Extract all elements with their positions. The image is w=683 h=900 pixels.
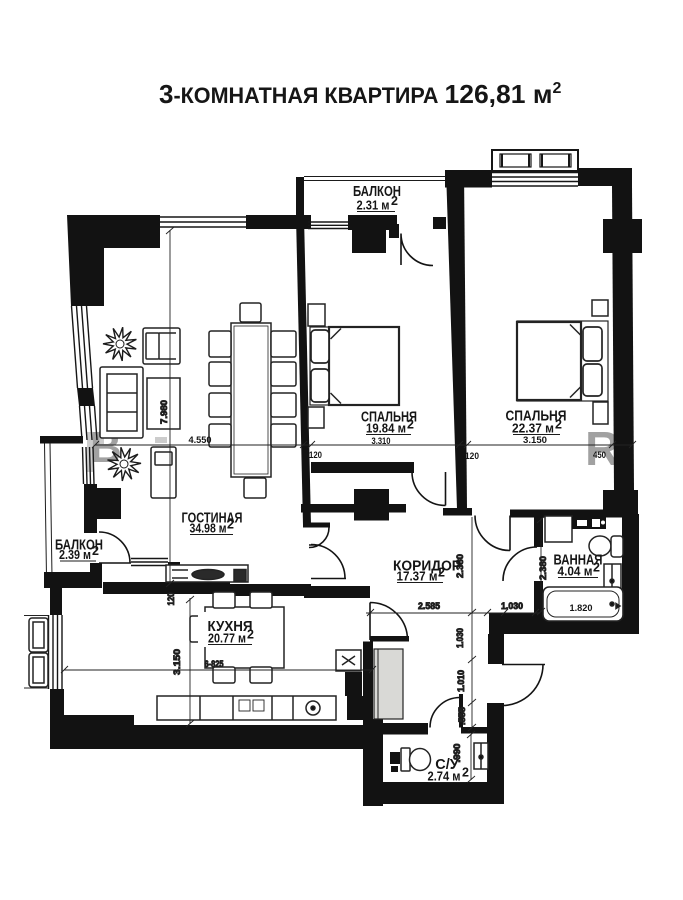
svg-text:2: 2	[391, 194, 398, 208]
svg-text:1.010: 1.010	[456, 670, 466, 692]
svg-text:2.74 м: 2.74 м	[428, 770, 461, 784]
svg-text:120: 120	[465, 451, 479, 461]
svg-text:120: 120	[309, 450, 322, 460]
svg-text:4.04 м: 4.04 м	[558, 565, 593, 579]
svg-text:34.98 м: 34.98 м	[190, 522, 227, 536]
svg-text:2.585: 2.585	[418, 601, 440, 611]
svg-text:17.37 м: 17.37 м	[397, 570, 438, 584]
svg-text:1.820: 1.820	[570, 603, 593, 613]
svg-text:4.550: 4.550	[189, 435, 212, 445]
svg-text:2: 2	[407, 418, 414, 432]
svg-text:2: 2	[438, 566, 445, 580]
svg-text:19.84 м: 19.84 м	[366, 422, 406, 436]
svg-text:3.150: 3.150	[523, 435, 547, 445]
svg-text:2: 2	[555, 418, 562, 432]
svg-text:450: 450	[593, 450, 606, 460]
svg-text:2.380: 2.380	[538, 556, 548, 580]
svg-text:7.980: 7.980	[159, 400, 169, 424]
svg-text:2: 2	[247, 628, 254, 642]
svg-text:20.77 м: 20.77 м	[208, 632, 246, 646]
svg-text:2: 2	[462, 766, 469, 780]
svg-text:2.39 м: 2.39 м	[59, 548, 91, 562]
svg-text:.555: .555	[457, 707, 467, 725]
svg-text:1.030: 1.030	[501, 601, 523, 611]
svg-text:1.030: 1.030	[455, 628, 465, 648]
svg-text:3.310: 3.310	[372, 436, 391, 446]
svg-text:2: 2	[227, 518, 234, 532]
svg-text:2: 2	[92, 544, 99, 558]
svg-text:3-КОМНАТНАЯ КВАРТИРА126,81 м2: 3-КОМНАТНАЯ КВАРТИРА126,81 м2	[159, 79, 561, 109]
svg-text:120: 120	[166, 593, 176, 606]
svg-text:22.37 м: 22.37 м	[512, 422, 554, 436]
svg-text:6-825: 6-825	[205, 659, 224, 669]
svg-text:2.31 м: 2.31 м	[357, 199, 390, 213]
svg-text:2: 2	[593, 561, 600, 575]
svg-text:3.150: 3.150	[172, 649, 182, 675]
